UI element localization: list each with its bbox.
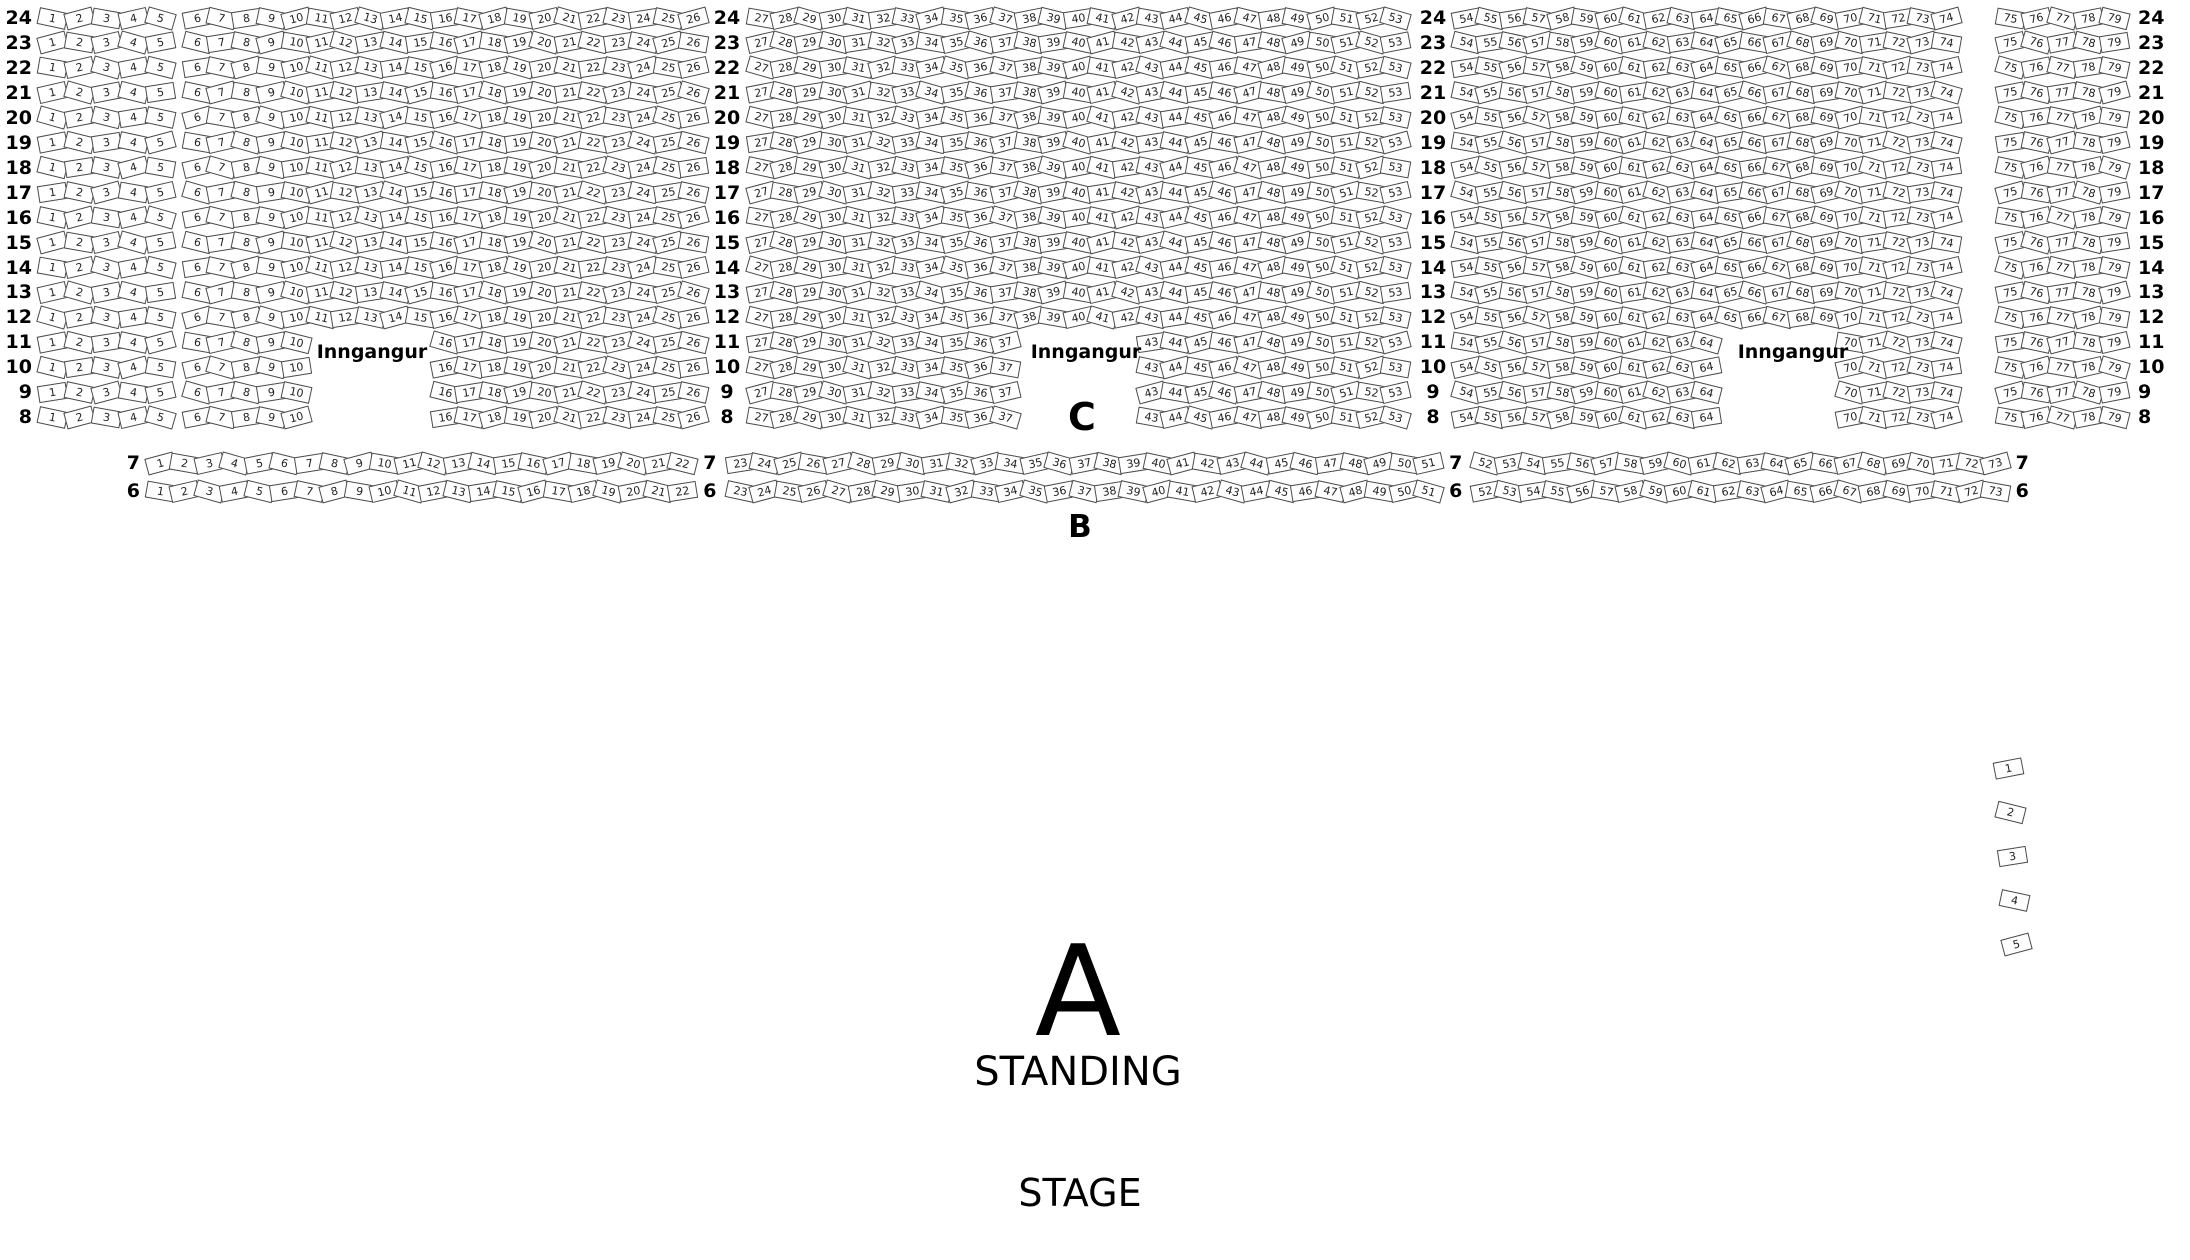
seat[interactable]: 74 [1930,280,1963,304]
seat[interactable]: 74 [1930,357,1961,378]
row-number-label: 7 [100,452,140,474]
seat[interactable]: 64 [1690,407,1721,428]
seat[interactable]: 74 [1930,6,1962,30]
seat[interactable]: 5 [145,6,178,30]
seat[interactable]: 2 [63,206,95,230]
row-number-label: 24 [0,7,32,29]
row-number-label: 21 [707,82,747,104]
seat[interactable]: 5 [145,82,176,103]
seat[interactable]: 53 [1379,381,1411,404]
seat[interactable]: 3 [1996,845,2027,866]
row-number-label: 16 [707,207,747,229]
seat[interactable]: 2 [63,81,96,105]
seat[interactable]: 5 [145,256,177,280]
row-number-label: 23 [2138,32,2178,54]
seat[interactable]: 53 [1380,231,1412,253]
seat[interactable]: 79 [2098,107,2130,129]
seat[interactable]: 1 [36,356,68,380]
row-number-label: 10 [707,356,747,378]
seat[interactable]: 2 [64,157,95,178]
row-number-label: 24 [707,7,747,29]
seat[interactable]: 3 [91,406,123,428]
seat[interactable]: 5 [145,356,177,378]
entrance-label-left: Inngangur [272,340,472,364]
seat[interactable]: 1 [36,382,67,403]
row-number-label: 17 [2138,182,2178,204]
seat[interactable]: 53 [1380,157,1412,179]
seat[interactable]: 5 [145,282,176,303]
row-number-label: 20 [707,107,747,129]
seat[interactable]: 74 [1930,206,1962,230]
row-number-label: 15 [2138,232,2178,254]
seat[interactable]: 26 [677,56,709,79]
row-number-label: 14 [1413,257,1453,279]
row-number-label: 13 [0,281,32,303]
seat[interactable]: 53 [1379,330,1411,354]
seat[interactable]: 74 [1930,81,1963,105]
seat[interactable]: 74 [1930,405,1962,429]
row-number-label: 9 [0,381,32,403]
seat[interactable]: 79 [2098,307,2130,329]
seat[interactable]: 1 [36,57,68,79]
seat[interactable]: 2 [63,181,95,204]
seat[interactable]: 5 [145,381,177,404]
row-number-label: 10 [0,356,32,378]
seat[interactable]: 74 [1930,381,1962,404]
seat[interactable]: 26 [677,357,708,378]
entrance-label-center: Inngangur [986,340,1186,364]
row-number-label: 10 [2138,356,2178,378]
seat[interactable]: 79 [2098,6,2130,30]
seat[interactable]: 26 [677,206,709,230]
seat[interactable]: 1 [1992,757,2024,779]
seat[interactable]: 2 [63,232,95,254]
seat[interactable]: 79 [2098,131,2130,154]
stage-label: STAGE [950,1170,1210,1216]
seat[interactable]: 1 [36,31,68,55]
seat[interactable]: 79 [2098,331,2130,354]
seat[interactable]: 26 [677,107,709,129]
row-number-label: 16 [0,207,32,229]
row-number-label: 16 [1413,207,1453,229]
seat[interactable]: 74 [1930,56,1962,79]
row-number-label: 23 [707,32,747,54]
seat[interactable]: 5 [145,306,177,329]
seat[interactable]: 79 [2098,355,2131,379]
seat[interactable]: 1 [36,257,68,279]
row-number-label: 8 [0,406,32,428]
seat[interactable]: 2 [63,405,95,429]
row-number-label: 17 [0,182,32,204]
seat[interactable]: 26 [677,181,709,204]
seat[interactable]: 79 [2098,206,2130,230]
seat[interactable]: 74 [1930,107,1962,129]
seat[interactable]: 10 [280,381,312,404]
seat[interactable]: 1 [36,206,68,229]
row-number-label: 17 [707,182,747,204]
seat[interactable]: 53 [1380,356,1412,378]
entrance-label-right: Inngangur [1693,340,1893,364]
seat[interactable]: 2 [1994,800,2026,824]
standing-label: STANDING [928,1048,1228,1096]
row-number-label: 24 [2138,7,2178,29]
row-number-label: 22 [707,57,747,79]
seat[interactable]: 3 [90,106,122,130]
seat[interactable]: 5 [145,330,177,354]
row-number-label: 17 [1413,182,1453,204]
seat[interactable]: 53 [1379,181,1411,204]
seat[interactable]: 74 [1930,306,1962,328]
row-number-label: 7 [690,452,730,474]
row-number-label: 9 [707,381,747,403]
seat[interactable]: 5 [145,205,178,229]
row-number-label: 19 [2138,132,2178,154]
seat[interactable]: 53 [1380,282,1411,303]
seat[interactable]: 53 [1379,106,1411,129]
seat[interactable]: 53 [1379,405,1412,429]
row-number-label: 18 [0,157,32,179]
row-number-label: 22 [0,57,32,79]
seat[interactable]: 79 [2098,232,2129,253]
seat[interactable]: 53 [1380,82,1411,103]
seat[interactable]: 1 [36,132,68,154]
seat[interactable]: 26 [677,381,709,404]
seat[interactable]: 5 [145,405,178,429]
seat[interactable]: 79 [2098,182,2130,204]
seat[interactable]: 5 [145,56,177,80]
seat[interactable]: 2 [63,280,96,304]
seat[interactable]: 4 [1998,889,2030,912]
row-number-label: 13 [1413,281,1453,303]
seat[interactable]: 2 [63,306,95,328]
seat[interactable]: 53 [1379,131,1411,155]
seat[interactable]: 53 [1379,56,1411,80]
row-number-label: 6 [100,480,140,502]
row-number-label: 11 [2138,331,2178,353]
row-number-label: 20 [2138,107,2178,129]
seat[interactable]: 26 [677,280,710,304]
seat[interactable]: 79 [2098,256,2130,279]
row-number-label: 6 [2002,480,2042,502]
seat[interactable]: 5 [145,231,177,253]
seat[interactable]: 1 [36,406,68,429]
row-number-label: 23 [0,32,32,54]
seat[interactable]: 53 [1379,205,1412,229]
seat[interactable]: 5 [145,32,177,54]
seat[interactable]: 53 [1379,256,1411,280]
seat[interactable]: 74 [1930,256,1962,279]
row-number-label: 13 [707,281,747,303]
row-number-label: 12 [707,306,747,328]
seat[interactable]: 10 [280,405,312,429]
row-number-label: 18 [707,157,747,179]
seat[interactable]: 1 [36,182,67,203]
seat[interactable]: 1 [36,106,69,130]
seat[interactable]: 5 [2000,932,2032,956]
seat-map-canvas: 2424242412345678910111213141516171819202… [0,0,2190,1260]
row-number-label: 14 [707,257,747,279]
row-number-label: 19 [0,132,32,154]
row-number-label: 15 [707,232,747,254]
row-number-label: 6 [1436,480,1476,502]
seat[interactable]: 79 [2098,405,2130,429]
seat[interactable]: 74 [1930,232,1962,254]
seat[interactable]: 5 [145,106,177,129]
seat[interactable]: 26 [677,6,709,30]
row-number-label: 21 [2138,82,2178,104]
row-number-label: 20 [1413,107,1453,129]
row-number-label: 11 [707,331,747,353]
seat[interactable]: 2 [63,331,95,355]
row-number-label: 18 [2138,157,2178,179]
seat[interactable]: 1 [36,7,68,30]
seat[interactable]: 26 [677,405,709,429]
seat[interactable]: 2 [64,357,95,378]
row-number-label: 9 [2138,381,2178,403]
row-number-label: 18 [1413,157,1453,179]
seat[interactable]: 74 [1930,157,1961,178]
seat[interactable]: 3 [90,56,123,80]
seat[interactable]: 26 [677,232,709,254]
seat[interactable]: 26 [677,331,709,355]
row-number-label: 12 [2138,306,2178,328]
seat[interactable]: 3 [90,306,122,330]
seat[interactable]: 2 [63,131,95,155]
seat[interactable]: 53 [1379,306,1411,329]
seat[interactable]: 3 [91,132,122,153]
row-number-label: 16 [2138,207,2178,229]
seat[interactable]: 1 [36,156,68,180]
row-number-label: 19 [1413,132,1453,154]
row-number-label: 11 [1413,331,1453,353]
seat[interactable]: 74 [1930,181,1962,204]
seat[interactable]: 3 [91,207,123,229]
seat[interactable]: 1 [36,305,69,329]
row-number-label: 11 [0,331,32,353]
seat[interactable]: 74 [1930,131,1962,155]
row-number-label: 20 [0,107,32,129]
row-number-label: 14 [2138,257,2178,279]
seat[interactable]: 79 [2098,32,2129,53]
seat[interactable]: 3 [91,7,123,29]
seat[interactable]: 79 [2098,156,2131,180]
row-number-label: 12 [1413,306,1453,328]
seat[interactable]: 79 [2098,81,2130,105]
seat[interactable]: 1 [36,331,68,353]
seat[interactable]: 3 [91,332,122,353]
seat[interactable]: 5 [145,131,177,155]
row-number-label: 10 [1413,356,1453,378]
row-number-label: 6 [690,480,730,502]
seat[interactable]: 26 [677,131,709,155]
seat[interactable]: 4 [118,182,150,204]
row-number-label: 7 [1436,452,1476,474]
row-number-label: 22 [1413,57,1453,79]
seat[interactable]: 5 [145,157,177,179]
seat[interactable]: 74 [1930,331,1962,355]
row-number-label: 8 [2138,406,2178,428]
row-number-label: 8 [1413,406,1453,428]
section-a-label: A [978,922,1178,1062]
row-number-label: 14 [0,257,32,279]
row-number-label: 8 [707,406,747,428]
seat[interactable]: 53 [1379,6,1412,30]
row-number-label: 23 [1413,32,1453,54]
section-b-label: B [1000,509,1160,545]
seat[interactable]: 2 [63,32,95,54]
seat[interactable]: 26 [677,256,709,279]
row-number-label: 22 [2138,57,2178,79]
seat[interactable]: 26 [677,81,710,105]
row-number-label: 24 [1413,7,1453,29]
seat[interactable]: 64 [1690,380,1722,404]
section-c-label: C [1002,394,1162,440]
seat[interactable]: 26 [677,306,709,328]
seat[interactable]: 53 [1380,32,1412,54]
row-number-label: 15 [0,232,32,254]
seat[interactable]: 1 [36,231,68,255]
row-number-label: 9 [1413,381,1453,403]
seat[interactable]: 2 [63,381,95,404]
seat[interactable]: 79 [2098,280,2130,304]
seat[interactable]: 79 [2098,57,2130,80]
seat[interactable]: 79 [2098,381,2130,403]
row-number-label: 19 [707,132,747,154]
seat[interactable]: 26 [677,157,708,178]
row-number-label: 21 [1413,82,1453,104]
row-number-label: 15 [1413,232,1453,254]
seat[interactable]: 74 [1930,32,1962,54]
row-number-label: 12 [0,306,32,328]
seat[interactable]: 2 [63,6,95,30]
row-number-label: 21 [0,82,32,104]
seat[interactable]: 26 [677,32,709,54]
seat[interactable]: 5 [145,181,177,204]
row-number-label: 7 [2002,452,2042,474]
row-number-label: 13 [2138,281,2178,303]
